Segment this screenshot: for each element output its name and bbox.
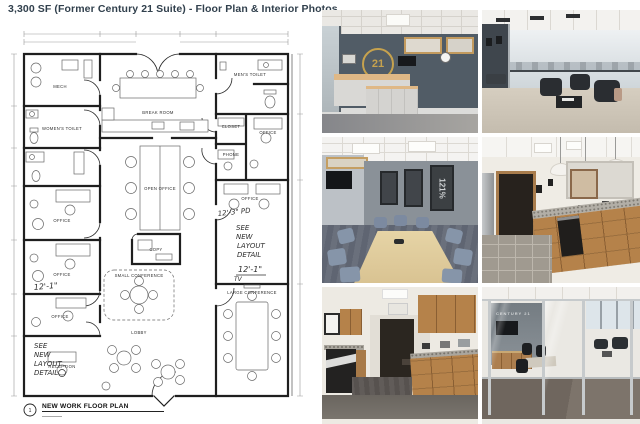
transom-window: [404, 37, 442, 54]
glass-frame-mullion: [582, 299, 585, 415]
room-label-womens-toilet: WOMEN'S TOILET: [42, 126, 82, 131]
handwritten-note-right-4: DETAIL: [237, 251, 261, 259]
handwritten-dim-pd: 12'-3" PD: [217, 207, 251, 218]
upper-cabinets-right: [418, 295, 476, 333]
room-label-copy: COPY: [149, 247, 162, 252]
room-label-open-office: OPEN OFFICE: [144, 186, 176, 191]
room-label-office-a: OFFICE: [53, 218, 70, 223]
photo-glass-conference: CENTURY 21: [482, 287, 640, 424]
poster-text: 121%: [438, 178, 447, 198]
framed-picture: [548, 179, 553, 186]
upper-cabinet-left: [340, 309, 362, 335]
counter-items: [422, 343, 430, 349]
task-chair: [453, 248, 473, 267]
parking-lot-view: [506, 62, 640, 70]
pendant-cord: [615, 137, 616, 159]
photo-kitchen: [482, 137, 640, 283]
ceiling-light: [382, 289, 408, 299]
bench-seat: [486, 74, 506, 84]
photo-copy-room: [322, 287, 478, 424]
wall-clock: [440, 52, 451, 63]
room-label-mens-toilet: MEN'S TOILET: [234, 72, 266, 77]
photo-lobby: [482, 10, 640, 133]
handwritten-dim-right: 12'-1": [238, 265, 262, 274]
handwritten-note-left-1: SEE: [34, 342, 48, 350]
light-fixture: [530, 16, 544, 20]
wall-oven: [557, 215, 584, 256]
hallway-chair: [594, 339, 608, 349]
bulletin-board: [570, 169, 598, 199]
photo-conference: 121%: [322, 137, 478, 283]
glass-reflection: [545, 301, 582, 415]
task-chair: [394, 215, 407, 226]
room-label-break-room: BREAK ROOM: [142, 110, 174, 115]
transom-window: [446, 37, 474, 54]
light-fixture: [496, 18, 510, 22]
hallway-table: [602, 351, 612, 357]
glass-partition-edge: [508, 24, 510, 88]
speakerphone: [394, 239, 404, 244]
window-sill-bar: [506, 70, 640, 72]
tv-annotation: TV: [234, 276, 243, 283]
handwritten-dim-left: 12'-1": [33, 281, 58, 292]
wood-transom: [326, 157, 368, 169]
handwritten-note-left-2: NEW: [34, 351, 52, 359]
framed-picture: [496, 36, 502, 44]
ceiling-vent: [534, 143, 552, 153]
handwritten-note-right-3: LAYOUT: [237, 242, 265, 250]
task-chair: [442, 268, 463, 283]
framed-picture: [536, 185, 542, 193]
ceiling-light: [386, 14, 410, 26]
hallway-chair: [612, 337, 628, 349]
pendant-cord: [560, 137, 561, 163]
room-label-office-b: OFFICE: [53, 272, 70, 277]
counter-items: [440, 341, 450, 348]
task-chair: [327, 248, 347, 267]
room-label-large-conference: LARGE CONFERENCE: [227, 290, 276, 295]
framed-poster-121: 121%: [430, 165, 454, 211]
room-label-office-d: OFFICE: [259, 130, 276, 135]
task-chair: [340, 266, 361, 282]
framed-picture: [324, 313, 340, 335]
floor-plan-drawing: MECH WOMEN'S TOILET OFFICE OFFICE OFFICE…: [4, 18, 318, 424]
ceiling-vent: [388, 303, 408, 315]
plan-title: NEW WORK FLOOR PLAN: [42, 403, 129, 410]
framed-picture: [486, 38, 492, 46]
room-label-office-c: OFFICE: [51, 314, 68, 319]
room-label-closet: CLOSET: [222, 124, 241, 129]
ceiling: [482, 137, 640, 157]
armchair: [570, 74, 590, 90]
handwritten-note-right-1: SEE: [236, 224, 250, 232]
flyer-page: 3,300 SF (Former Century 21 Suite) - Flo…: [0, 0, 640, 424]
room-label-small-conference: SMALL CONFERENCE: [115, 273, 164, 278]
table-papers: [562, 98, 574, 101]
handwritten-note-right-2: NEW: [236, 233, 254, 241]
doorway: [380, 319, 414, 377]
throw-blanket: [614, 88, 622, 101]
counter-items: [458, 339, 470, 347]
glass-frame-mullion: [630, 299, 633, 415]
tv-screen: [398, 56, 416, 66]
handwritten-note-left-4: DETAIL: [34, 369, 58, 377]
task-chair: [416, 217, 429, 228]
ceiling-light: [352, 143, 380, 154]
photo-reception: 21: [322, 10, 478, 133]
page-title: 3,300 SF (Former Century 21 Suite) - Flo…: [8, 3, 338, 15]
light-fixture: [566, 14, 580, 18]
armchair: [540, 78, 562, 96]
framed-poster: [404, 169, 423, 207]
carpet-floor: [322, 114, 478, 133]
glass-reflection: [491, 301, 542, 415]
room-label-phone: PHONE: [223, 152, 239, 157]
plan-title-block: 1 NEW WORK FLOOR PLAN: [24, 403, 164, 417]
century21-logo-text: 21: [372, 58, 384, 70]
floor-plan: MECH WOMEN'S TOILET OFFICE OFFICE OFFICE…: [4, 18, 318, 424]
tv-screen: [326, 171, 352, 189]
detail-number: 1: [29, 408, 32, 414]
task-chair: [374, 217, 387, 228]
handwritten-note-left-3: LAYOUT: [34, 360, 62, 368]
ceiling-vent: [566, 141, 582, 150]
wall-plaque: [342, 54, 356, 64]
carpet-floor-edge: [322, 395, 478, 419]
room-label-lobby: LOBBY: [131, 330, 146, 335]
room-label-office-e: OFFICE: [241, 196, 258, 201]
tile-floor: [482, 235, 552, 283]
room-label-mech: MECH: [53, 84, 67, 89]
framed-poster: [380, 171, 398, 205]
ceiling-light: [408, 141, 436, 152]
photo-grid: 21: [322, 10, 640, 424]
